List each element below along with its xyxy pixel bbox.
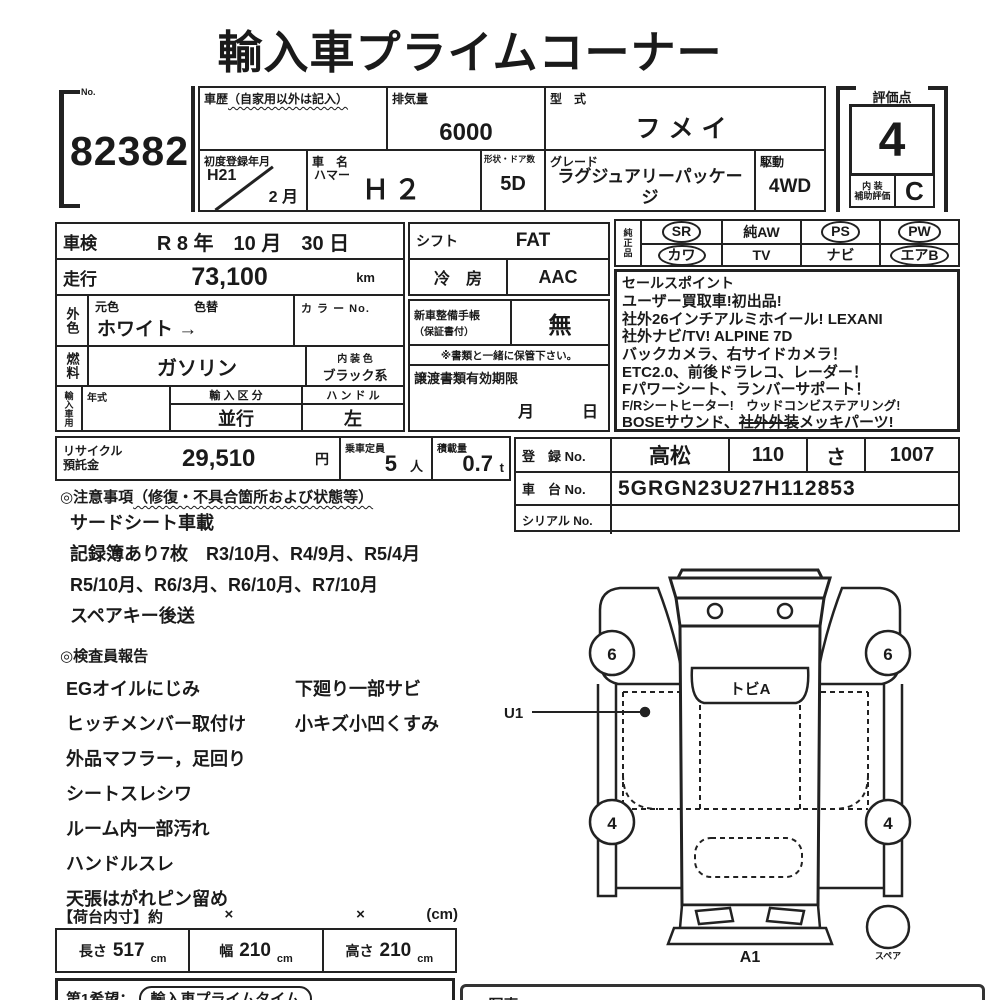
rear-mark: A1: [740, 949, 761, 966]
maintenance-book-row: 新車整備手帳 （保証書付） 無: [408, 299, 610, 346]
transfer-doc-label: 譲渡書類有効期限: [414, 368, 518, 387]
car-name-cell: 車 名 ハマー Ｈ２: [306, 149, 482, 212]
interior-color-label: 内 装 色: [307, 347, 403, 365]
serial-value: [612, 506, 958, 534]
shaken-label: 車検: [57, 229, 103, 254]
shift-value: FAT: [458, 230, 608, 252]
reg-class: 110: [730, 439, 808, 471]
auction-number: 82382: [69, 128, 190, 175]
transfer-doc-cell: 譲渡書類有効期限 月 日: [408, 364, 610, 432]
shaken-row: 車検 R 8 年 10 月 30 日: [55, 222, 405, 260]
notes-heading-note: （修復・不具合箇所および状態等）: [133, 489, 373, 506]
mileage-unit: km: [356, 270, 403, 285]
sales-points-box: セールスポイント ユーザー買取車!初出品! 社外26インチアルミホイール! LE…: [614, 269, 960, 432]
serial-label: シリアル No.: [516, 506, 612, 534]
drive-value: 4WD: [756, 176, 824, 198]
first-reg-year: H21: [207, 167, 236, 185]
shape-doors-value: 5D: [482, 173, 544, 196]
reg-number: 1007: [866, 439, 958, 471]
history-cell: 車歴（自家用以外は記入）: [198, 86, 388, 151]
displacement-label: 排気量: [392, 90, 428, 107]
front-bumper: [670, 578, 830, 598]
registration-row: 登 録 No. 高松 110 さ 1007: [516, 439, 958, 473]
front-left-tire-value: 6: [607, 645, 616, 664]
import-class-value: 並行: [171, 405, 301, 431]
color-value: ホワイト →: [97, 314, 197, 341]
hood-detail-right: [778, 604, 792, 618]
part-aw: 純AW: [721, 221, 800, 243]
genuine-side-label: 純正品: [616, 221, 642, 265]
report-item: EGオイルにじみ: [66, 672, 246, 707]
note-line: サードシート車載: [70, 508, 420, 539]
orig-color-label: 元色: [95, 298, 119, 315]
sales-line: バックカメラ、右サイドカメラ！: [622, 346, 952, 364]
part-leather: カワ: [642, 243, 721, 267]
report-item: 小キズ小凹くすみ: [295, 707, 439, 742]
mileage-row: 走行 73,100 km: [55, 258, 405, 296]
load-cell: 積載量 0.7 t: [431, 436, 511, 481]
sales-line: 社外26インチアルミホイール! LEXANI: [622, 311, 952, 329]
capacity-unit: 人: [410, 456, 423, 475]
part-navi: ナビ: [800, 243, 879, 267]
fuel-side-label: 燃料: [57, 347, 89, 385]
memo-box: ◆写真: [460, 984, 985, 1000]
color-no-label: カ ラ ー No.: [301, 300, 370, 316]
capacity-cell: 乗車定員 5 人: [339, 436, 433, 481]
import-side-label: 輸入車用: [57, 387, 83, 430]
model-code-label: 型 式: [550, 90, 586, 107]
reg-area: 高松: [612, 439, 730, 471]
recycle-value: 29,510: [122, 445, 315, 473]
sales-line-bose: BOSEサウンド、社外外装メッキパーツ!: [622, 414, 952, 432]
interior-score-label: 内 装 補助評価: [849, 174, 896, 208]
page-title: 輸入車プライムコーナー: [0, 16, 940, 81]
note-line: スペアキー後送: [70, 601, 420, 632]
report-col1: EGオイルにじみ ヒッチメンバー取付け 外品マフラー，足回り シートスレシワ ル…: [66, 672, 246, 917]
mileage-value: 73,100: [103, 263, 356, 292]
book-label-1: 新車整備手帳: [414, 307, 510, 323]
book-label-2: （保証書付）: [414, 323, 510, 338]
shaken-value: R 8 年 10 月 30 日: [103, 227, 403, 256]
genuine-parts-box: 純正品 SR 純AW PS PW カワ TV ナビ エアB: [614, 219, 960, 267]
note-line: R5/10月、R6/3月、R6/10月、R7/10月: [70, 570, 420, 601]
report-item: ヒッチメンバー取付け: [66, 707, 246, 742]
cargo-width: 幅210cm: [190, 930, 323, 971]
ac-label: 冷 房: [410, 260, 506, 294]
year-type-label: 年式: [87, 389, 107, 404]
cargo-x1: ×: [163, 906, 295, 927]
cargo-length: 長さ517cm: [57, 930, 190, 971]
drive-label: 駆動: [760, 153, 784, 170]
recycle-label-2: 預託金: [63, 459, 122, 473]
recycle-unit: 円: [315, 449, 339, 469]
recycle-deposit-cell: リサイクル 預託金 29,510 円: [55, 436, 341, 481]
front-right-tire-value: 6: [883, 645, 892, 664]
rear-left-tire-value: 4: [607, 814, 617, 833]
first-reg-month: 2 月: [269, 183, 298, 207]
dashed-right-arch: [833, 775, 868, 809]
serial-row: シリアル No.: [516, 506, 958, 534]
inspector-report-heading: ◎検査員報告: [60, 645, 148, 666]
notes-heading: ◎注意事項（修復・不具合箇所および状態等）: [60, 486, 373, 507]
u1-label: U1: [504, 705, 523, 722]
history-label: 車歴: [204, 92, 228, 106]
load-value: 0.7: [462, 451, 493, 477]
part-airbag: エアB: [879, 243, 958, 267]
hood-detail-left: [708, 604, 722, 618]
score-box: 評価点 4 内 装 補助評価 C: [836, 86, 948, 212]
sales-line: 社外ナビ/TV! ALPINE 7D: [622, 328, 952, 346]
right-side-strip: [884, 684, 902, 896]
handle-label: ハ ン ド ル: [303, 387, 403, 405]
load-unit: t: [500, 460, 504, 475]
sales-points-label: セールスポイント: [622, 273, 952, 293]
fuel-value: ガソリン: [89, 347, 305, 385]
report-col2: 下廻り一部サビ 小キズ小凹くすみ: [295, 672, 439, 742]
color-arrow: →: [178, 319, 197, 340]
first-choice-value: 輸入車プライムタイム: [139, 986, 312, 1000]
rear-skirt: [668, 928, 832, 944]
first-choice-box: 第1希望： 輸入車プライムタイム: [55, 978, 455, 1000]
exterior-side-label: 外色: [57, 296, 89, 345]
report-item: ルーム内一部汚れ: [66, 812, 246, 847]
displacement-cell: 排気量 6000: [386, 86, 546, 151]
part-tv: TV: [721, 243, 800, 267]
registration-label: 登 録 No.: [516, 439, 612, 471]
part-ps: PS: [800, 221, 879, 243]
chassis-value: 5GRGN23U27H112853: [612, 473, 958, 504]
car-name-value: Ｈ２: [308, 168, 480, 207]
chassis-row: 車 台 No. 5GRGN23U27H112853: [516, 473, 958, 506]
windshield-mark: トビA: [730, 681, 771, 698]
cargo-heading: 【荷台内寸】約: [58, 906, 163, 927]
book-value: 無: [510, 301, 608, 344]
ac-row: 冷 房 AAC: [408, 258, 610, 296]
chassis-label: 車 台 No.: [516, 473, 612, 504]
capacity-label: 乗車定員: [345, 440, 385, 455]
shift-label: シフト: [410, 231, 458, 251]
interior-score-value: C: [896, 174, 935, 208]
model-code-value: フメイ: [546, 109, 824, 145]
cargo-height: 高さ210cm: [324, 930, 455, 971]
drive-cell: 駆動 4WD: [754, 149, 826, 212]
part-sr: SR: [642, 221, 721, 243]
ac-value: AAC: [506, 260, 608, 294]
reg-kana: さ: [808, 439, 866, 471]
notes-list: サードシート車載 記録簿あり7枚 R3/10月、R4/9月、R5/4月 R5/1…: [70, 508, 420, 632]
recycle-label-1: リサイクル: [63, 445, 122, 459]
spare-label: スペア: [875, 951, 901, 961]
sales-line: F/Rシートヒーター! ウッドコンビステアリング!: [622, 399, 952, 414]
sales-line: ユーザー買取車!初出品!: [622, 293, 952, 311]
report-item: シートスレシワ: [66, 777, 246, 812]
hood-bar: [676, 598, 824, 626]
left-side-strip: [598, 684, 616, 896]
import-class-label: 輸 入 区 分: [171, 387, 301, 405]
grade-cell: グレード ラグジュアリーパッケージ: [544, 149, 756, 212]
cargo-unit: (cm): [426, 906, 458, 927]
shape-doors-label: 形状・ドア数: [484, 153, 535, 165]
auction-sheet: 輸入車プライムコーナー No. 82382 車歴（自家用以外は記入） 排気量 6…: [0, 0, 1000, 1000]
report-item: 外品マフラー，足回り: [66, 742, 246, 777]
displacement-value: 6000: [388, 119, 544, 147]
registration-block: 登 録 No. 高松 110 さ 1007 車 台 No. 5GRGN23U27…: [514, 437, 960, 532]
recolor-label: 色替: [194, 298, 218, 315]
model-code-cell: 型 式 フメイ: [544, 86, 826, 151]
history-note: （自家用以外は記入）: [228, 92, 348, 106]
car-condition-diagram: 6 6 4 4 トビA U1 A1 スペア: [480, 550, 1000, 970]
fuel-row: 燃料 ガソリン 内 装 色 ブラック系: [55, 345, 405, 387]
mileage-label: 走行: [57, 265, 103, 290]
first-choice-label: 第1希望：: [66, 991, 134, 1000]
rear-right-tire-value: 4: [883, 814, 893, 833]
handle-value: 左: [303, 405, 403, 431]
note-line: 記録簿あり7枚 R3/10月、R4/9月、R5/4月: [70, 539, 420, 570]
capacity-value: 5: [385, 451, 397, 477]
interior-color-value: ブラック系: [307, 365, 403, 384]
cargo-table: 長さ517cm 幅210cm 高さ210cm: [55, 928, 457, 973]
transfer-doc-value: 月 日: [518, 398, 598, 422]
auction-number-box: No. 82382: [55, 86, 190, 212]
report-item: ハンドルスレ: [66, 847, 246, 882]
report-item: 下廻り一部サビ: [295, 672, 439, 707]
cargo-heading-row: 【荷台内寸】約 × × (cm): [58, 906, 458, 927]
score-value: 4: [849, 104, 935, 176]
spare-tire-circle: [867, 906, 909, 948]
divider: [191, 86, 195, 212]
exterior-color-row: 外色 元色 色替 ホワイト → カ ラ ー No.: [55, 294, 405, 347]
first-registration-cell: 初度登録年月 H21 2 月: [198, 149, 308, 212]
grade-value: ラグジュアリーパッケージ: [556, 167, 744, 208]
auction-no-label: No.: [81, 87, 96, 97]
keep-note: ※書類と一緒に保管下さい。: [408, 344, 610, 366]
shift-row: シフト FAT: [408, 222, 610, 260]
cargo-x2: ×: [295, 906, 427, 927]
part-pw: PW: [879, 221, 958, 243]
shape-doors-cell: 形状・ドア数 5D: [480, 149, 546, 212]
dashed-left-arch: [623, 775, 658, 809]
sales-line: ETC2.0、前後ドラレコ、レーダー！: [622, 364, 952, 382]
u1-pointer-dot: [641, 708, 649, 716]
import-row: 輸入車用 年式 輸 入 区 分 並行 ハ ン ド ル 左: [55, 385, 405, 432]
sales-line: Fパワーシート、ランバーサポート！: [622, 381, 952, 399]
